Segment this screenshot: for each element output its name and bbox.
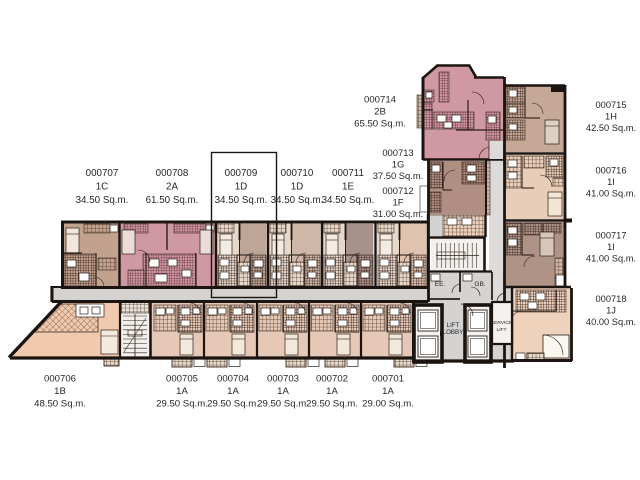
svg-text:40.00 Sq.m.: 40.00 Sq.m. [586,317,636,327]
svg-text:41.00 Sq.m.: 41.00 Sq.m. [586,189,636,199]
svg-text:31.00 Sq.m.: 31.00 Sq.m. [373,208,424,219]
svg-text:000705: 000705 [166,374,198,385]
svg-text:34.50 Sq.m.: 34.50 Sq.m. [322,195,375,206]
svg-text:1D: 1D [235,182,248,193]
svg-text:GB.: GB. [474,281,485,288]
svg-text:48.50 Sq.m.: 48.50 Sq.m. [34,399,86,410]
svg-text:000716: 000716 [595,166,626,176]
svg-text:1C: 1C [96,182,109,193]
svg-text:1H: 1H [605,112,617,122]
svg-text:1G: 1G [392,159,405,170]
svg-text:1F: 1F [393,197,404,208]
svg-text:000707: 000707 [86,168,119,179]
svg-text:000706: 000706 [44,374,76,385]
svg-text:EE.: EE. [435,281,446,288]
svg-text:34.50 Sq.m.: 34.50 Sq.m. [215,195,268,206]
svg-text:1I: 1I [607,242,615,252]
svg-text:29.50 Sq.m.: 29.50 Sq.m. [156,399,208,410]
svg-text:000704: 000704 [217,374,250,385]
svg-text:000715: 000715 [595,100,626,110]
svg-text:1J: 1J [606,306,616,316]
svg-text:000703: 000703 [267,374,299,385]
svg-text:000702: 000702 [316,374,348,385]
svg-text:42.50 Sq.m.: 42.50 Sq.m. [586,123,636,133]
svg-text:29.50 Sq.m.: 29.50 Sq.m. [257,399,309,410]
svg-text:LIFT: LIFT [447,322,460,329]
svg-text:000701: 000701 [372,374,404,385]
svg-text:34.50 Sq.m.: 34.50 Sq.m. [76,195,129,206]
svg-text:37.50 Sq.m.: 37.50 Sq.m. [373,170,424,181]
svg-text:29.50 Sq.m.: 29.50 Sq.m. [207,399,259,410]
svg-text:000710: 000710 [281,168,314,179]
svg-text:29.50 Sq.m.: 29.50 Sq.m. [306,399,358,410]
svg-text:1D: 1D [291,182,304,193]
svg-text:000712: 000712 [382,185,413,196]
svg-text:1A: 1A [227,386,239,397]
svg-text:SERVICE: SERVICE [491,320,513,326]
svg-text:1E: 1E [342,182,354,193]
svg-text:000711: 000711 [332,168,364,179]
svg-text:34.50 Sq.m.: 34.50 Sq.m. [271,195,324,206]
svg-text:000717: 000717 [595,231,626,241]
svg-text:000708: 000708 [156,168,189,179]
svg-text:41.00 Sq.m.: 41.00 Sq.m. [586,254,636,264]
svg-text:1A: 1A [277,386,289,397]
svg-text:LIFT: LIFT [496,327,506,333]
svg-text:29.00 Sq.m.: 29.00 Sq.m. [362,399,414,410]
svg-text:000709: 000709 [225,168,258,179]
svg-text:65.50 Sq.m.: 65.50 Sq.m. [354,119,406,130]
svg-text:2B: 2B [374,107,386,118]
svg-text:1I: 1I [607,177,615,187]
svg-text:1A: 1A [382,386,394,397]
svg-text:1A: 1A [176,386,188,397]
svg-text:1B: 1B [54,386,66,397]
svg-text:1A: 1A [326,386,338,397]
svg-text:000714: 000714 [364,95,397,106]
svg-text:000718: 000718 [595,294,626,304]
svg-text:61.50 Sq.m.: 61.50 Sq.m. [146,195,199,206]
svg-text:2A: 2A [166,182,178,193]
svg-text:LOBBY: LOBBY [443,329,464,336]
svg-text:000713: 000713 [382,147,413,158]
